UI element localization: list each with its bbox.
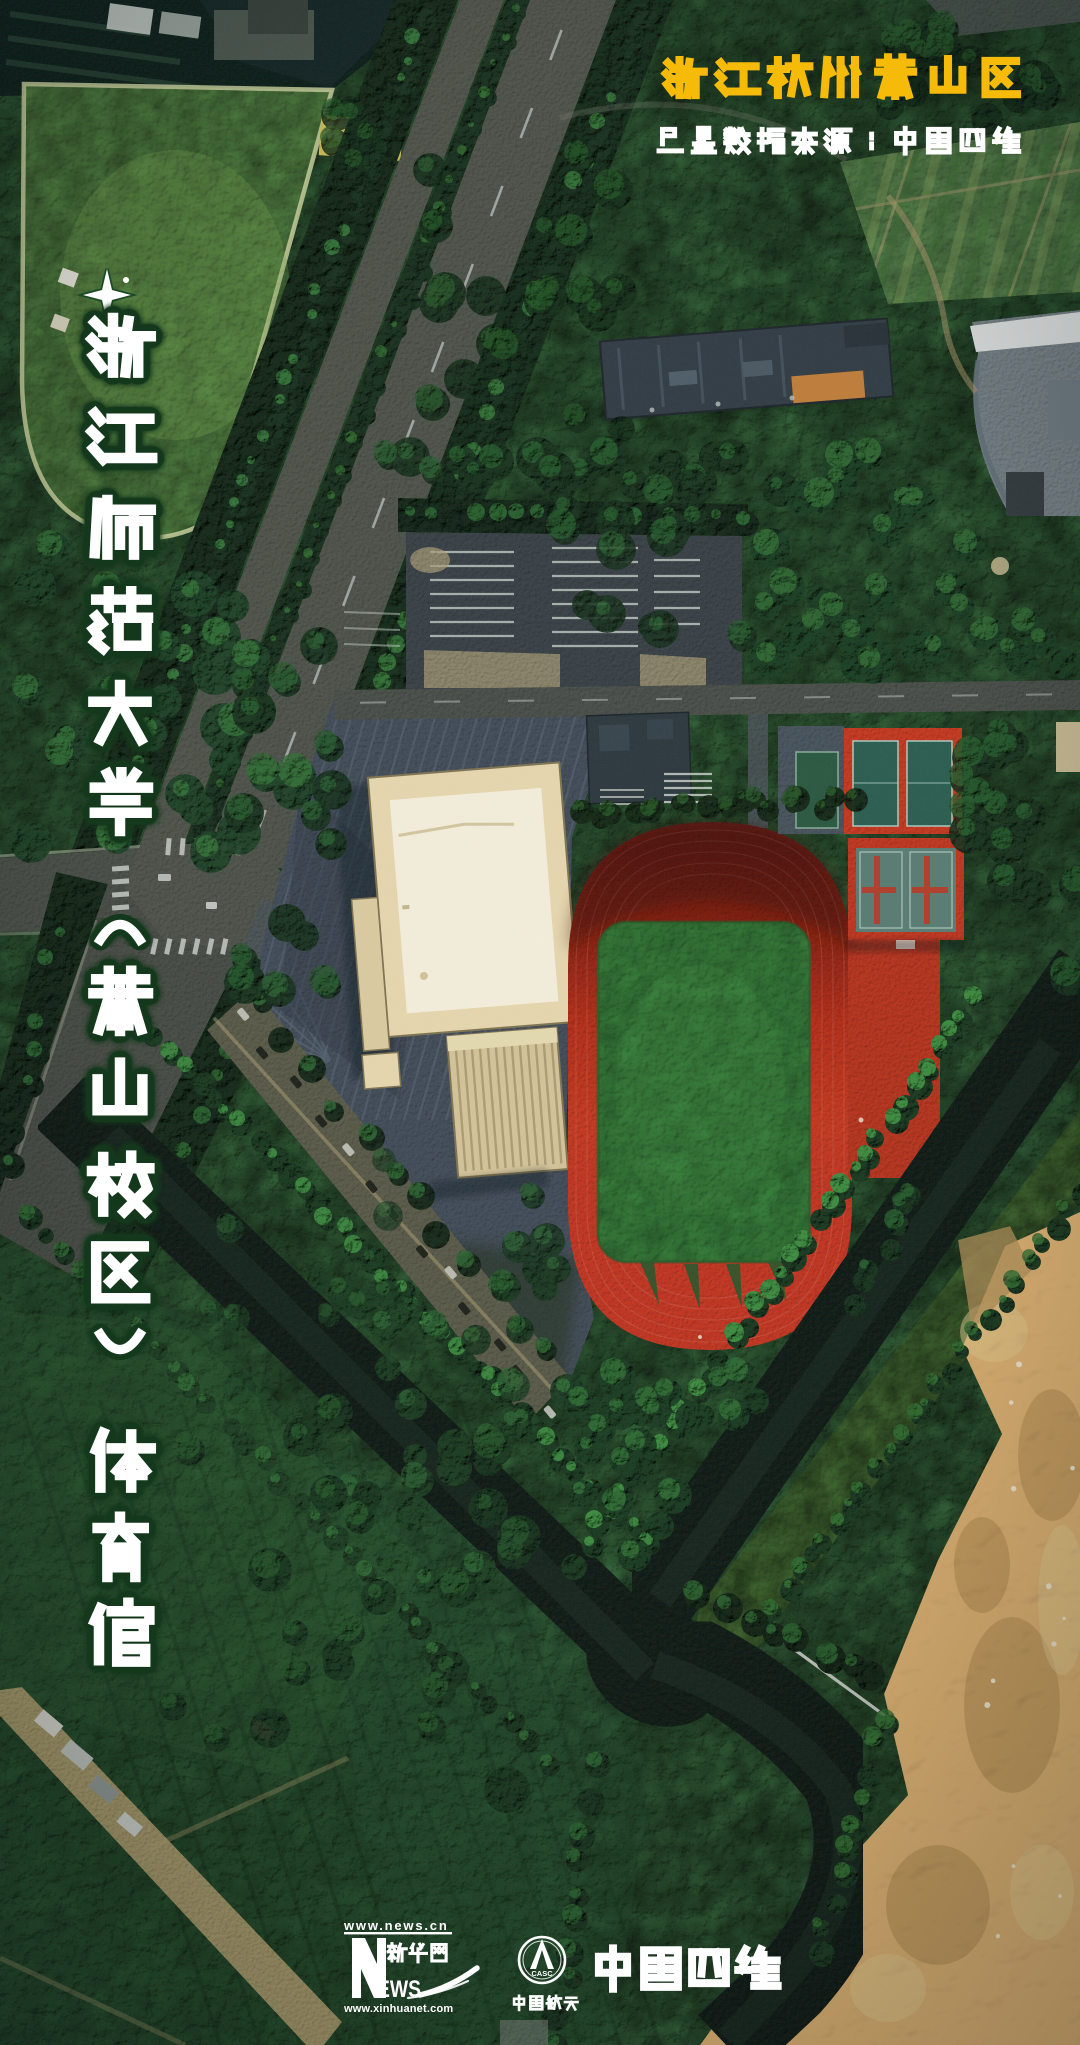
svg-text:www.xinhuanet.com: www.xinhuanet.com bbox=[343, 2003, 453, 2015]
svg-text:CASC: CASC bbox=[531, 1969, 553, 1978]
svg-text:www.news.cn: www.news.cn bbox=[343, 1918, 449, 1933]
svg-text:EWS: EWS bbox=[377, 1976, 421, 2003]
